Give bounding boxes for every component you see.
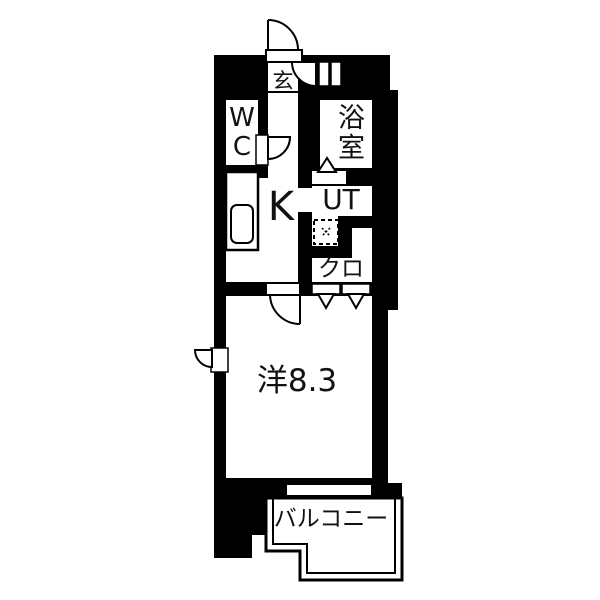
entrance-door-frame [266,50,302,62]
room-door-frame [266,283,300,295]
wc-door-opening [256,135,268,165]
floorplan-drawing [0,0,600,600]
wall-room-right [372,282,388,497]
wall-balcony-right-stub [372,483,402,497]
bath-folding-door-mark [318,158,336,172]
wall-right-upper [372,90,398,310]
balcony-window [286,484,372,496]
closet-door-panel-2 [342,284,370,294]
entrance-door-swing-arc [268,20,298,50]
balcony-outline-outer [266,498,402,580]
closet-door-fold-mark-1 [318,294,334,308]
wall-closet-top [298,246,352,258]
ut-door-opening [296,188,314,212]
shoe-cabinet-door-arc [292,62,316,86]
washing-machine-pan-cross [322,228,330,236]
walls [214,55,402,558]
closet-door-fold-mark-2 [348,294,364,308]
closet-door-panel-1 [312,284,340,294]
kitchen-sink [231,205,253,243]
room-door-swing-arc [270,295,300,324]
shoe-cabinet-shelf-2 [331,62,341,86]
wall-balcony-left-step [214,535,252,558]
shoe-cabinet-shelf-1 [319,62,329,86]
service-door-swing-arc [195,350,212,367]
floorplan: 玄 WC 浴室 K UT クロ 洋8.3 バルコニー [0,0,600,600]
wall-balcony-left [214,478,266,535]
service-door-opening [211,348,228,372]
wc-door-swing-arc [268,137,290,159]
